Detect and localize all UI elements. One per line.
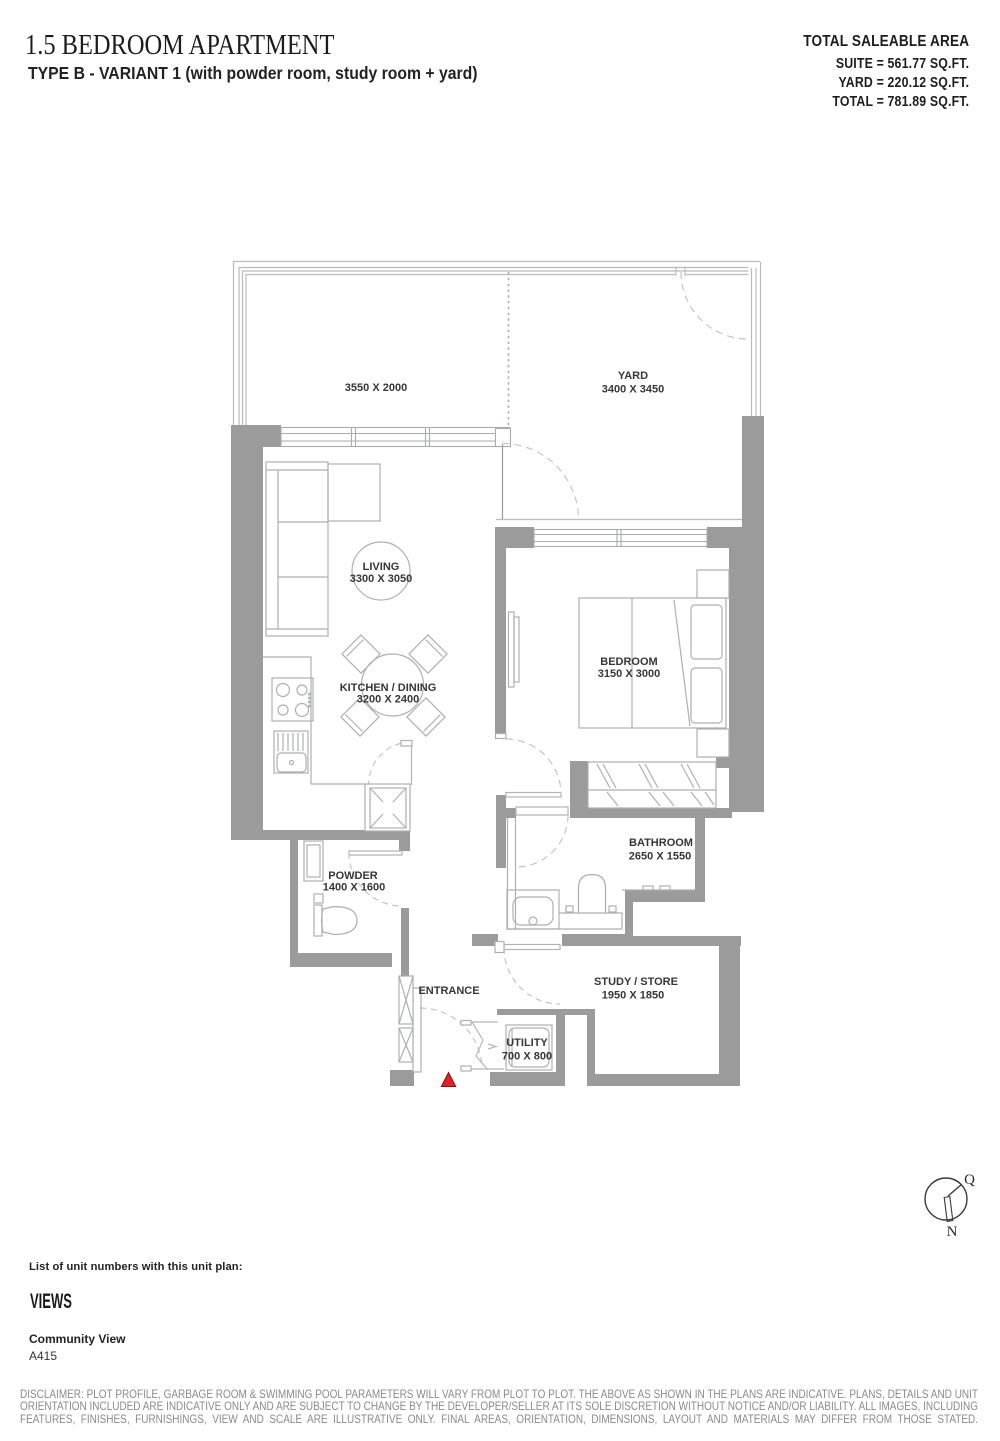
svg-text:3200 X 2400: 3200 X 2400 bbox=[357, 694, 419, 706]
svg-text:N: N bbox=[947, 1224, 958, 1240]
svg-text:3150 X 3000: 3150 X 3000 bbox=[598, 668, 660, 680]
svg-text:BEDROOM: BEDROOM bbox=[600, 656, 657, 668]
svg-text:1400 X 1600: 1400 X 1600 bbox=[323, 882, 385, 894]
svg-text:700 X 800: 700 X 800 bbox=[502, 1051, 552, 1063]
svg-text:YARD: YARD bbox=[618, 370, 648, 382]
svg-text:1950 X 1850: 1950 X 1850 bbox=[602, 990, 664, 1002]
svg-text:BATHROOM: BATHROOM bbox=[629, 837, 693, 849]
svg-text:2650 X 1550: 2650 X 1550 bbox=[629, 851, 691, 863]
svg-text:3300 X 3050: 3300 X 3050 bbox=[350, 573, 412, 585]
svg-text:KITCHEN / DINING: KITCHEN / DINING bbox=[340, 682, 437, 694]
svg-text:POWDER: POWDER bbox=[328, 870, 378, 882]
svg-text:STUDY / STORE: STUDY / STORE bbox=[594, 976, 678, 988]
svg-text:Q: Q bbox=[964, 1172, 975, 1188]
svg-text:ENTRANCE: ENTRANCE bbox=[418, 985, 479, 997]
svg-text:3550 X 2000: 3550 X 2000 bbox=[345, 382, 407, 394]
svg-text:UTILITY: UTILITY bbox=[506, 1037, 548, 1049]
svg-text:LIVING: LIVING bbox=[363, 561, 400, 573]
svg-text:3400 X 3450: 3400 X 3450 bbox=[602, 384, 664, 396]
